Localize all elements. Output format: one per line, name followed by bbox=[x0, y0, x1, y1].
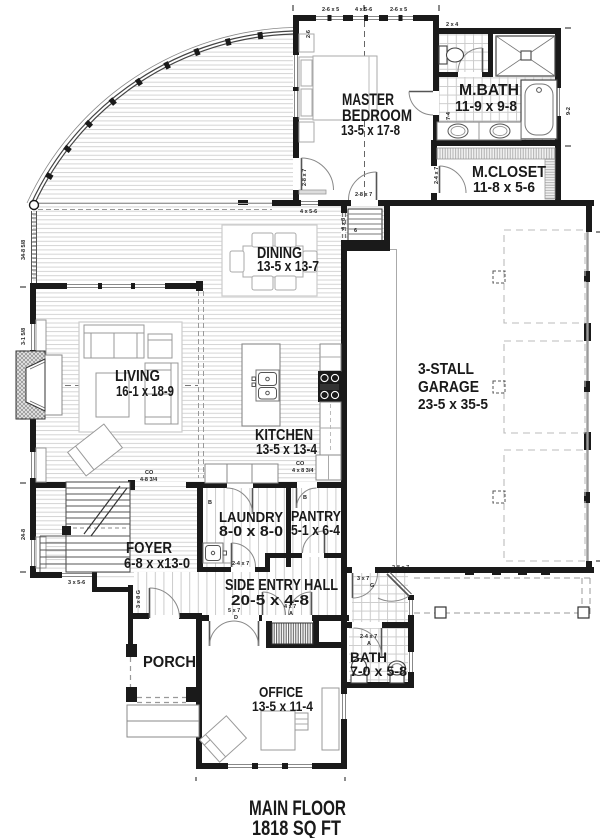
svg-text:13-5 x 13-4: 13-5 x 13-4 bbox=[256, 441, 318, 458]
svg-text:34-8 5/8: 34-8 5/8 bbox=[21, 240, 27, 260]
svg-text:A: A bbox=[289, 611, 293, 617]
svg-text:1818 SQ FT: 1818 SQ FT bbox=[252, 817, 341, 838]
svg-text:D: D bbox=[234, 615, 238, 621]
svg-text:3 x 8 G: 3 x 8 G bbox=[136, 590, 142, 608]
svg-text:6: 6 bbox=[354, 228, 357, 234]
svg-text:4 x 7: 4 x 7 bbox=[284, 604, 296, 610]
svg-text:CO: CO bbox=[296, 461, 305, 467]
svg-text:2-8 x 7: 2-8 x 7 bbox=[392, 565, 409, 571]
svg-text:2-6 x 5: 2-6 x 5 bbox=[322, 7, 339, 13]
svg-text:3 x 5-6: 3 x 5-6 bbox=[68, 580, 85, 586]
svg-text:2-4 x 7: 2-4 x 7 bbox=[232, 561, 249, 567]
svg-text:8-0 x 8-0: 8-0 x 8-0 bbox=[219, 523, 283, 540]
svg-text:7-0 x 5-8: 7-0 x 5-8 bbox=[350, 663, 407, 679]
svg-text:11-9 x 9-8: 11-9 x 9-8 bbox=[455, 98, 517, 115]
svg-text:B: B bbox=[303, 495, 307, 501]
svg-text:2-6: 2-6 bbox=[306, 30, 312, 38]
svg-text:3-1 5/8: 3-1 5/8 bbox=[21, 328, 27, 345]
svg-text:6-8 x x13-0: 6-8 x x13-0 bbox=[124, 555, 190, 572]
svg-text:2-8 x 7: 2-8 x 7 bbox=[302, 169, 308, 186]
svg-text:24-8: 24-8 bbox=[21, 529, 27, 540]
svg-text:M.BATH: M.BATH bbox=[459, 82, 519, 99]
svg-text:3-STALL: 3-STALL bbox=[418, 361, 474, 378]
svg-text:4-8 3/4: 4-8 3/4 bbox=[140, 477, 158, 483]
svg-text:16-1 x 18-9: 16-1 x 18-9 bbox=[116, 383, 174, 400]
svg-text:11-8 x 5-6: 11-8 x 5-6 bbox=[473, 179, 535, 196]
svg-text:13-5 x 13-7: 13-5 x 13-7 bbox=[257, 258, 319, 275]
svg-text:2-6 x 5: 2-6 x 5 bbox=[390, 7, 407, 13]
svg-text:23-5 x 35-5: 23-5 x 35-5 bbox=[418, 396, 488, 413]
svg-text:3 x 7: 3 x 7 bbox=[357, 576, 369, 582]
svg-text:13-5 x 17-8: 13-5 x 17-8 bbox=[341, 122, 400, 139]
svg-text:5-1 x 6-4: 5-1 x 6-4 bbox=[291, 522, 341, 539]
svg-text:4 x 8 3/4: 4 x 8 3/4 bbox=[292, 468, 314, 474]
svg-text:4 x 5-6: 4 x 5-6 bbox=[300, 209, 317, 215]
svg-text:2 x 4: 2 x 4 bbox=[446, 22, 459, 28]
svg-text:20-5 x 4-8: 20-5 x 4-8 bbox=[231, 592, 309, 609]
svg-text:B: B bbox=[208, 500, 212, 506]
svg-text:9-2: 9-2 bbox=[566, 107, 572, 115]
svg-text:13-5 x 11-4: 13-5 x 11-4 bbox=[252, 698, 313, 714]
svg-text:4 x 8: 4 x 8 bbox=[341, 218, 347, 230]
svg-text:2-4 x 7: 2-4 x 7 bbox=[360, 634, 377, 640]
svg-text:CO: CO bbox=[145, 470, 154, 476]
svg-text:A: A bbox=[367, 641, 371, 647]
svg-text:5 x 7: 5 x 7 bbox=[228, 608, 240, 614]
svg-text:2-4 x 7: 2-4 x 7 bbox=[434, 167, 440, 184]
svg-text:2-8 x 7: 2-8 x 7 bbox=[355, 192, 372, 198]
svg-text:PORCH: PORCH bbox=[143, 654, 196, 671]
svg-text:GARAGE: GARAGE bbox=[418, 379, 479, 396]
svg-text:G: G bbox=[370, 583, 374, 589]
svg-text:7-4: 7-4 bbox=[446, 111, 452, 120]
